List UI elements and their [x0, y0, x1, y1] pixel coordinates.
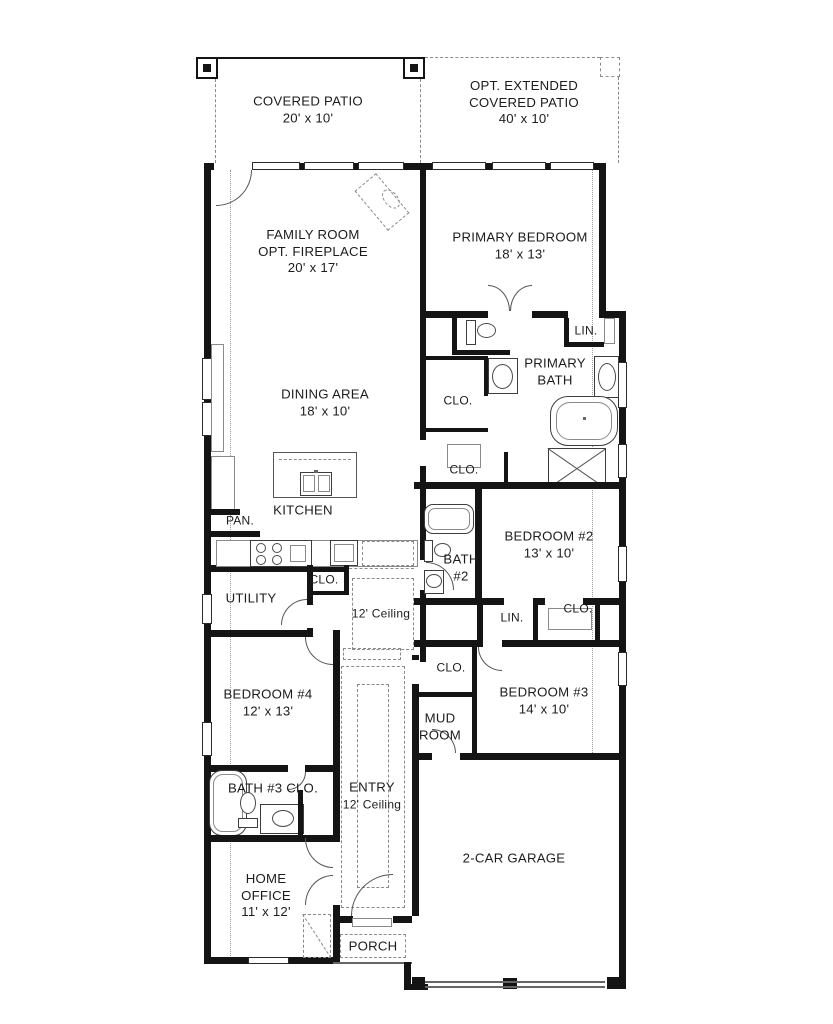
door-arc	[281, 599, 307, 625]
wall-segment	[426, 428, 488, 432]
toilet-fixture	[424, 540, 433, 562]
label-line: CLO.	[449, 462, 478, 476]
bedroom3-label: BEDROOM #3 14' x 10'	[500, 684, 589, 717]
label-line: 12' Ceiling	[343, 797, 401, 811]
label-line: BATH	[537, 372, 572, 387]
label-line: #2	[453, 568, 468, 583]
label-line: 2-CAR GARAGE	[463, 851, 566, 866]
wall-segment	[414, 692, 477, 697]
garage-door-post	[607, 977, 626, 989]
window	[248, 957, 289, 964]
label-line: FAMILY ROOM	[266, 227, 359, 242]
wall-segment	[412, 655, 419, 916]
label-line: KITCHEN	[273, 503, 333, 518]
sink-fixture	[598, 363, 616, 391]
label-line: OPT. EXTENDED	[470, 78, 578, 93]
wall-segment	[477, 598, 483, 647]
label-line: COVERED PATIO	[253, 93, 363, 108]
window	[618, 362, 627, 408]
optional-patio-post	[600, 57, 620, 77]
bedroom4-label: BEDROOM #4 12' x 13'	[224, 686, 313, 719]
wall-segment	[564, 342, 604, 347]
garage-label: 2-CAR GARAGE	[463, 851, 566, 868]
label-line: BATH	[443, 551, 478, 566]
label-line: 12' Ceiling	[352, 606, 410, 620]
range-oven	[290, 545, 306, 562]
label-line: 20' x 17'	[288, 260, 339, 275]
refrigerator-fixture	[334, 544, 354, 562]
ceiling-treatment-outline	[343, 648, 401, 660]
label-line: CLO.	[443, 393, 472, 407]
closet-label: CLO.	[443, 393, 472, 408]
wall-segment	[333, 916, 340, 964]
label-line: COVERED PATIO	[469, 95, 579, 110]
family-room-label: FAMILY ROOM OPT. FIREPLACE 20' x 17'	[258, 227, 368, 277]
wall-segment	[420, 318, 426, 440]
wall-segment	[420, 170, 426, 318]
closet-label: CLO.	[436, 660, 465, 675]
label-line: 12' x 13'	[243, 703, 294, 718]
label-line: CLO.	[309, 572, 338, 586]
label-line: 18' x 10'	[300, 403, 351, 418]
wall-segment	[460, 753, 626, 760]
bathtub-fixture	[556, 402, 612, 440]
window	[252, 162, 300, 170]
island-overhang-line	[279, 459, 351, 460]
patio-door-opening	[214, 163, 252, 170]
wall-segment	[204, 630, 310, 637]
label-line: HOME	[246, 871, 287, 886]
wall-segment	[426, 311, 488, 318]
pantry-label: PAN.	[226, 513, 254, 528]
double-door-arc	[510, 285, 532, 311]
closet-door-opening	[411, 660, 420, 684]
built-in-counter	[211, 456, 235, 512]
label-line: DINING AREA	[281, 386, 369, 401]
window	[358, 162, 404, 170]
label-line: 18' x 13'	[495, 246, 546, 261]
optional-patio-dashed-edge	[618, 77, 619, 163]
label-line: 13' x 10'	[524, 545, 575, 560]
door-arc	[478, 647, 502, 671]
label-line: ENTRY	[349, 779, 395, 794]
sink-fixture	[426, 574, 442, 588]
wall-segment	[599, 163, 606, 317]
porch-label: PORCH	[349, 939, 398, 956]
utility-label: UTILITY	[226, 591, 277, 608]
label-line: BEDROOM #2	[505, 528, 594, 543]
garage-door-line	[425, 986, 605, 988]
wall-segment	[502, 640, 626, 647]
wall-segment	[414, 598, 504, 605]
primary-bedroom-label: PRIMARY BEDROOM 18' x 13'	[452, 229, 587, 262]
kitchen-sink-basin	[318, 475, 330, 492]
label-line: 20' x 10'	[283, 110, 334, 125]
bedroom2-label: BEDROOM #2 13' x 10'	[505, 528, 594, 561]
window	[304, 162, 354, 170]
double-door-arc	[305, 838, 333, 868]
opt-patio-label: OPT. EXTENDED COVERED PATIO 40' x 10'	[469, 78, 579, 128]
label-line: CLO.	[436, 660, 465, 674]
window	[202, 594, 212, 624]
window	[618, 652, 627, 686]
label-line: ROOM	[419, 727, 461, 742]
linen-label: LIN.	[500, 610, 523, 625]
wall-segment	[204, 957, 248, 964]
wall-segment	[305, 765, 333, 772]
wall-segment	[414, 640, 477, 647]
patio-dashed-edge	[420, 79, 421, 163]
range-burner	[272, 555, 282, 565]
optional-fireplace-outline	[355, 173, 410, 231]
window	[202, 722, 212, 756]
label-line: LIN.	[500, 610, 523, 624]
window	[492, 162, 546, 170]
label-line: PORCH	[349, 939, 398, 954]
home-office-label: HOME OFFICE 11' x 12'	[241, 871, 291, 921]
bathtub-fixture	[428, 508, 470, 530]
wall-segment	[333, 630, 340, 838]
garage-door-post	[412, 977, 425, 989]
door-threshold	[352, 918, 392, 927]
label-line: 40' x 10'	[499, 111, 550, 126]
door-arc	[216, 170, 252, 206]
kitchen-sink-basin	[303, 475, 315, 492]
entry-label: ENTRY 12' Ceiling	[343, 779, 401, 812]
wall-segment	[472, 647, 477, 692]
closet-label: CLO.	[563, 601, 592, 616]
floor-plan: COVERED PATIO 20' x 10' OPT. EXTENDED CO…	[0, 0, 833, 1024]
label-line: 14' x 10'	[519, 701, 570, 716]
label-line: BEDROOM #4	[224, 686, 313, 701]
patio-edge	[218, 57, 403, 59]
wall-segment	[504, 452, 508, 486]
dining-area-label: DINING AREA 18' x 10'	[281, 386, 369, 419]
mud-room-label: MUD ROOM	[419, 710, 461, 743]
wall-segment	[452, 318, 457, 354]
window	[550, 162, 594, 170]
range-burner	[256, 543, 266, 553]
wall-segment	[619, 311, 626, 989]
label-line: BATH #3 CLO.	[228, 781, 318, 796]
wall-segment	[472, 697, 477, 753]
optional-appliance-outline	[362, 541, 414, 566]
window	[618, 546, 627, 582]
tub-drain	[583, 417, 586, 420]
wall-segment	[426, 356, 488, 360]
sink-fixture	[492, 364, 513, 389]
label-line: UTILITY	[226, 591, 277, 606]
closet-label: CLO.	[309, 572, 338, 587]
wall-segment	[208, 531, 260, 537]
ceiling-break-line	[344, 568, 414, 569]
label-line: LIN.	[574, 323, 597, 337]
porch-step-line	[333, 962, 412, 964]
double-door-arc	[305, 875, 333, 905]
closet-label: CLO.	[449, 462, 478, 477]
kitchen-label: KITCHEN	[273, 503, 333, 520]
primary-bath-label: PRIMARY BATH	[524, 355, 586, 388]
toilet-fixture	[466, 320, 476, 345]
label-line: OFFICE	[241, 888, 291, 903]
wall-segment	[393, 916, 412, 923]
optional-patio-dashed-edge	[425, 57, 600, 58]
wall-segment	[204, 163, 211, 964]
range-burner	[256, 555, 266, 565]
label-line: CLO.	[563, 601, 592, 615]
linen-label: LIN.	[574, 323, 597, 338]
patio-post-core	[203, 64, 211, 72]
window	[432, 162, 486, 170]
wall-segment	[307, 591, 349, 595]
label-line: OPT. FIREPLACE	[258, 244, 368, 259]
toilet-fixture	[477, 323, 496, 338]
label-line: PRIMARY	[524, 355, 586, 370]
label-line: 11' x 12'	[241, 904, 291, 919]
bath3-label: BATH #3 CLO.	[228, 781, 318, 798]
hall-ceiling-label: 12' Ceiling	[352, 606, 410, 621]
window	[618, 444, 627, 478]
toilet-fixture	[238, 818, 258, 828]
linen-shelf	[604, 318, 615, 344]
patio-post-core	[410, 64, 418, 72]
garage-door-line	[425, 981, 605, 983]
wall-segment	[532, 311, 568, 318]
sink-fixture	[272, 810, 294, 827]
label-line: BEDROOM #3	[500, 684, 589, 699]
label-line: MUD	[425, 710, 456, 725]
label-line: PAN.	[226, 513, 254, 527]
faucet	[314, 470, 318, 473]
wall-segment	[452, 350, 510, 355]
wall-segment	[289, 957, 339, 964]
wall-segment	[414, 482, 626, 489]
double-door-arc	[488, 285, 510, 311]
label-line: PRIMARY BEDROOM	[452, 229, 587, 244]
range-burner	[272, 543, 282, 553]
built-in-counter	[211, 344, 224, 452]
door-arc	[305, 637, 333, 665]
wall-segment	[484, 356, 488, 396]
covered-patio-label: COVERED PATIO 20' x 10'	[253, 93, 363, 126]
patio-dashed-edge	[215, 79, 216, 163]
bath2-label: BATH #2	[443, 551, 478, 584]
